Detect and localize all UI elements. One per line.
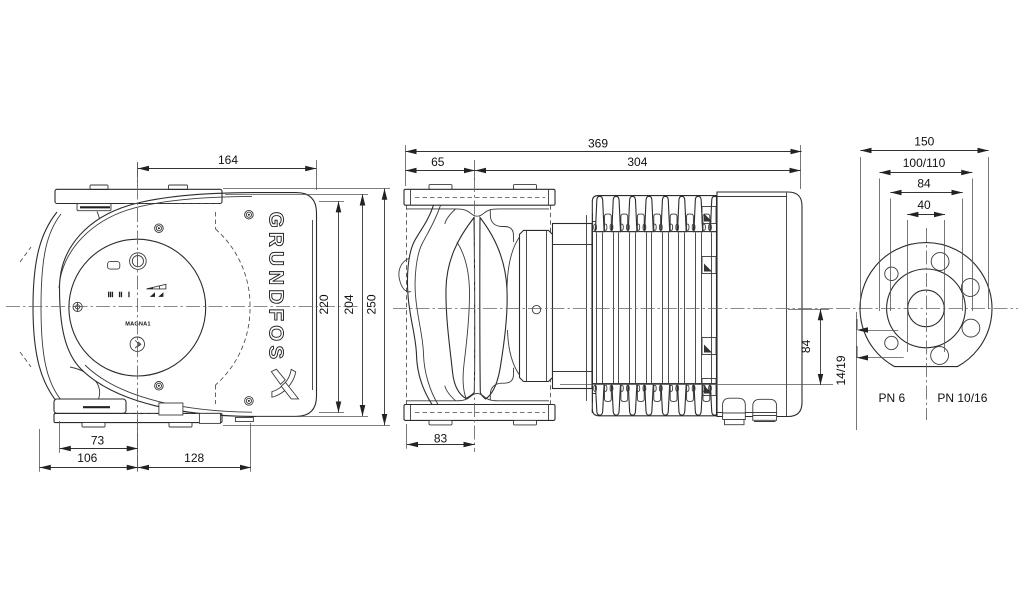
- svg-text:MAGNA1: MAGNA1: [125, 321, 150, 327]
- svg-text:106: 106: [77, 451, 97, 465]
- svg-text:369: 369: [588, 137, 608, 151]
- svg-text:304: 304: [627, 155, 647, 169]
- svg-text:164: 164: [218, 153, 238, 167]
- svg-text:84: 84: [917, 177, 931, 191]
- svg-text:PN 6: PN 6: [879, 391, 906, 405]
- svg-text:83: 83: [434, 431, 448, 445]
- svg-text:250: 250: [364, 294, 378, 314]
- svg-text:204: 204: [342, 294, 356, 314]
- svg-text:128: 128: [184, 451, 204, 465]
- svg-text:PN 10/16: PN 10/16: [937, 391, 987, 405]
- svg-text:14/19: 14/19: [834, 355, 848, 385]
- svg-text:84: 84: [799, 339, 813, 353]
- svg-text:40: 40: [917, 198, 931, 212]
- svg-text:65: 65: [431, 155, 445, 169]
- svg-text:100/110: 100/110: [903, 156, 946, 170]
- svg-text:GRUNDFOS: GRUNDFOS: [265, 212, 288, 364]
- svg-text:73: 73: [91, 434, 105, 448]
- svg-text:220: 220: [317, 294, 331, 314]
- svg-text:150: 150: [914, 134, 934, 148]
